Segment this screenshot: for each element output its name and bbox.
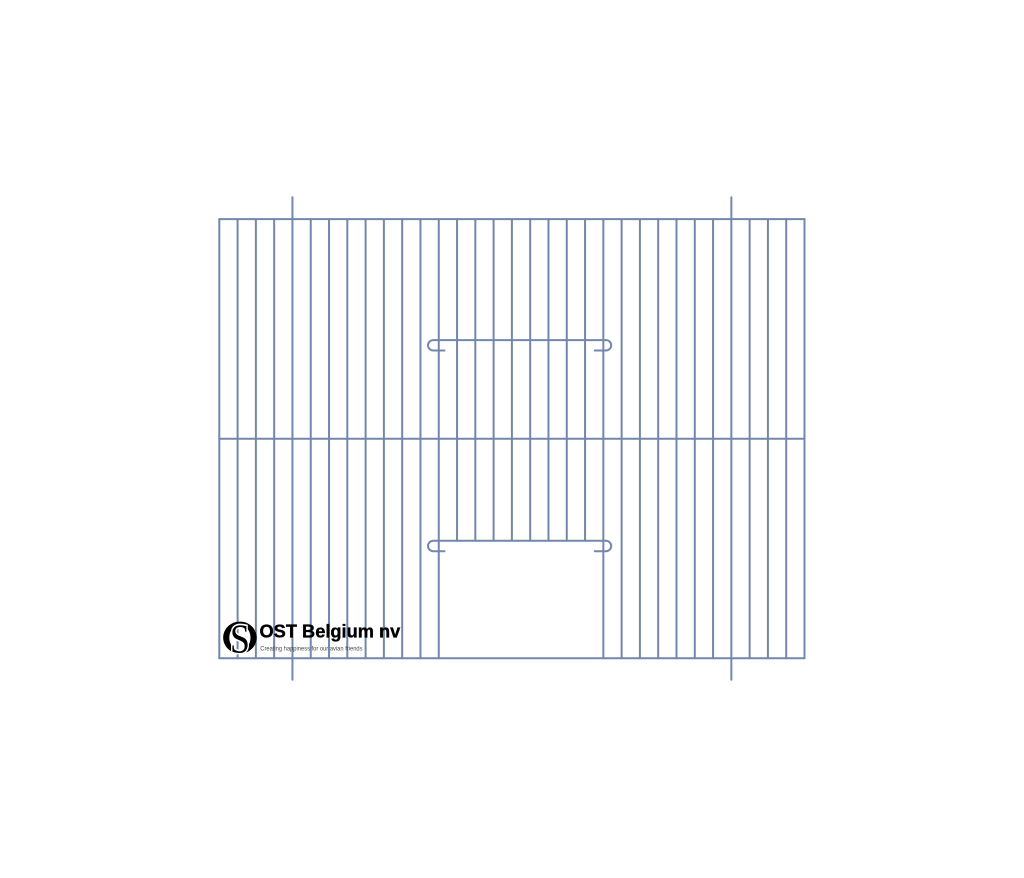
- svg-text:OST Belgium nv: OST Belgium nv: [260, 620, 402, 641]
- svg-text:S: S: [230, 617, 250, 662]
- svg-text:Creating happiness for our avi: Creating happiness for our avian friends: [260, 646, 362, 653]
